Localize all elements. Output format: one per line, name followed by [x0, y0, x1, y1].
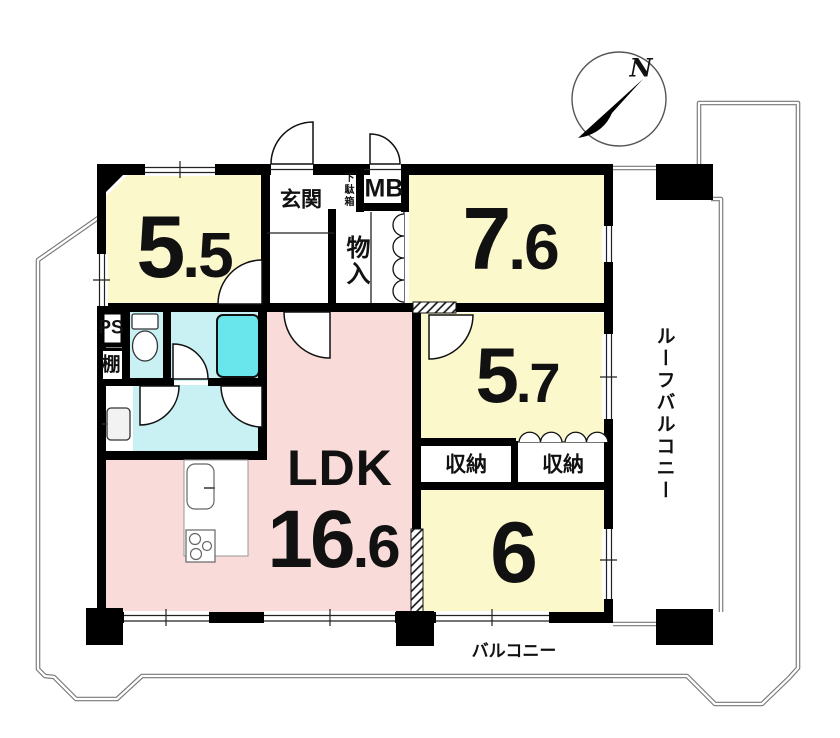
shoe-cabinet-label: 下駄箱: [342, 172, 352, 208]
compass-north-label: N: [630, 56, 653, 81]
floor-plan-drawing: [0, 0, 840, 738]
entrance-label: 玄関: [280, 190, 322, 211]
meter-box-label: MB: [365, 177, 404, 202]
pillar-bottom-left: [86, 608, 123, 645]
room-5-5-size: 5.5: [136, 203, 231, 291]
room-5-7-size: 5.7: [475, 336, 558, 414]
floor-plan: 5.5 7.6 5.7 6 LDK 16.6 玄関 下駄箱 MB 物入 収納 収…: [0, 0, 840, 738]
hatched-wall-ldk: [411, 529, 423, 613]
pillar-bottom-mid: [396, 611, 434, 646]
pillar-top-right: [656, 164, 713, 200]
balcony-label: バルコニー: [472, 643, 557, 660]
toilet-bowl: [133, 331, 158, 361]
storage-left-label: 収納: [445, 455, 487, 476]
closet-label: 物入: [343, 235, 367, 287]
kitchen-sink: [187, 464, 214, 509]
toilet-tank: [132, 314, 158, 329]
room-6-size: 6: [490, 510, 538, 596]
shelf-label: 棚: [101, 356, 120, 375]
hatched-wall-top: [413, 302, 456, 313]
storage-right-label: 収納: [542, 455, 584, 476]
door-meter-box: [370, 134, 400, 164]
ldk-size: 16.6: [267, 499, 398, 581]
room-7-6-size: 7.6: [462, 195, 557, 283]
roof-balcony-label: ルーフバルコニー: [655, 326, 674, 502]
door-entrance: [271, 122, 313, 164]
pipe-space-label: PS: [98, 319, 123, 338]
washing-machine: [107, 408, 130, 440]
pillar-bottom-right: [656, 609, 713, 645]
bathtub: [217, 315, 259, 377]
ldk-label: LDK: [287, 443, 393, 493]
